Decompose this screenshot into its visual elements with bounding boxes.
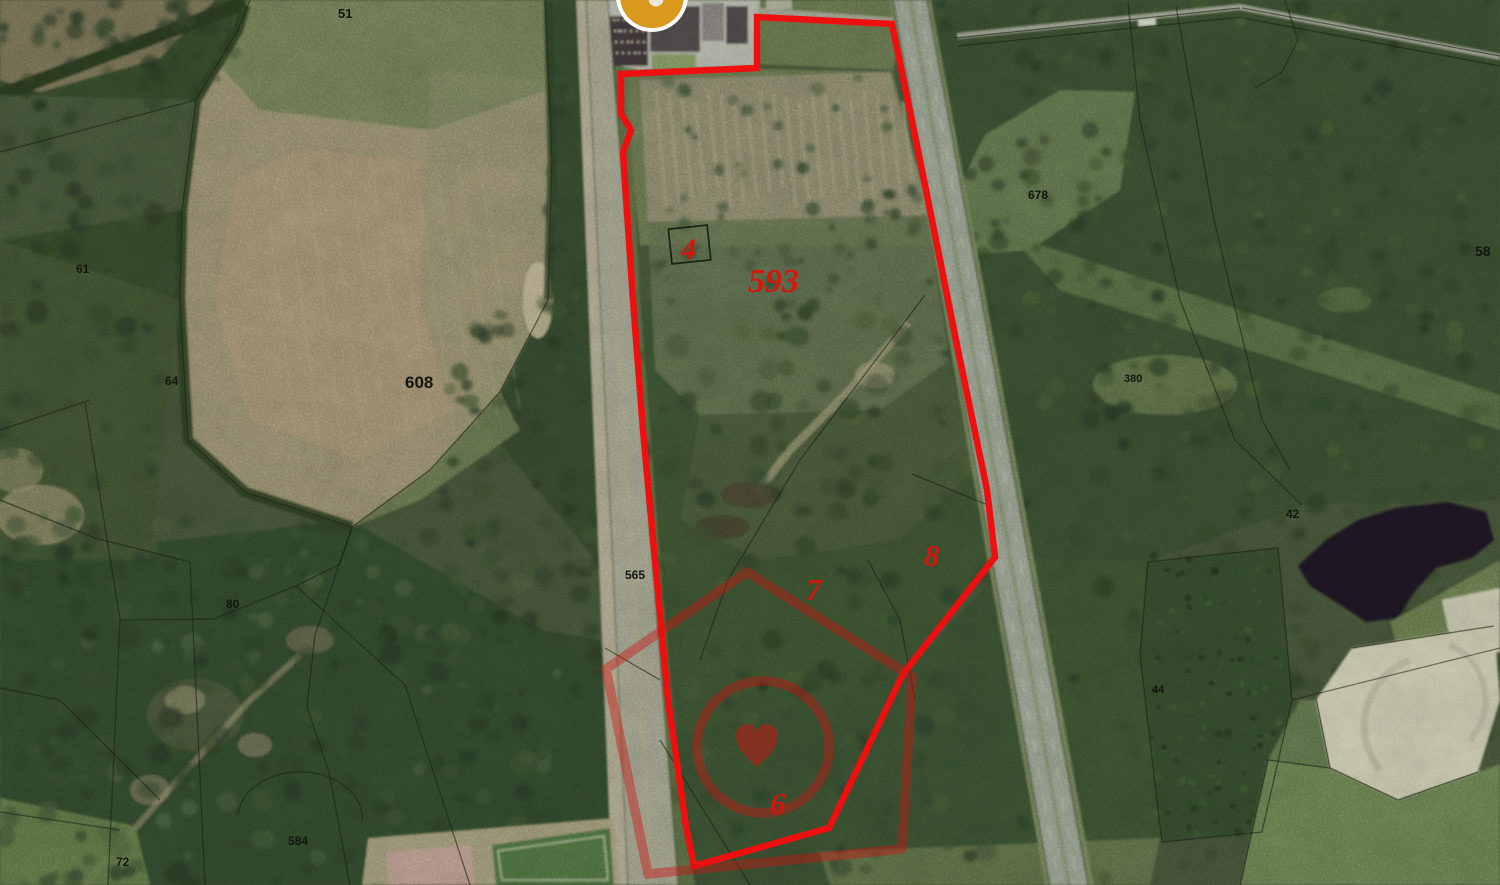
svg-text:42: 42 [1286, 507, 1300, 521]
svg-text:8: 8 [924, 538, 940, 573]
svg-text:565: 565 [625, 568, 645, 582]
svg-text:6: 6 [770, 786, 786, 821]
svg-text:58: 58 [1475, 243, 1491, 259]
svg-text:7: 7 [806, 572, 823, 607]
svg-text:61: 61 [76, 262, 90, 276]
svg-text:593: 593 [748, 263, 799, 300]
svg-text:584: 584 [288, 834, 308, 848]
svg-text:380: 380 [1124, 373, 1142, 385]
svg-text:64: 64 [165, 374, 179, 388]
svg-text:80: 80 [226, 597, 240, 611]
svg-text:51: 51 [338, 6, 352, 21]
svg-text:608: 608 [405, 373, 433, 392]
svg-text:44: 44 [1152, 684, 1165, 696]
svg-text:678: 678 [1028, 188, 1048, 202]
svg-text:4: 4 [680, 233, 696, 266]
svg-text:72: 72 [116, 855, 130, 869]
